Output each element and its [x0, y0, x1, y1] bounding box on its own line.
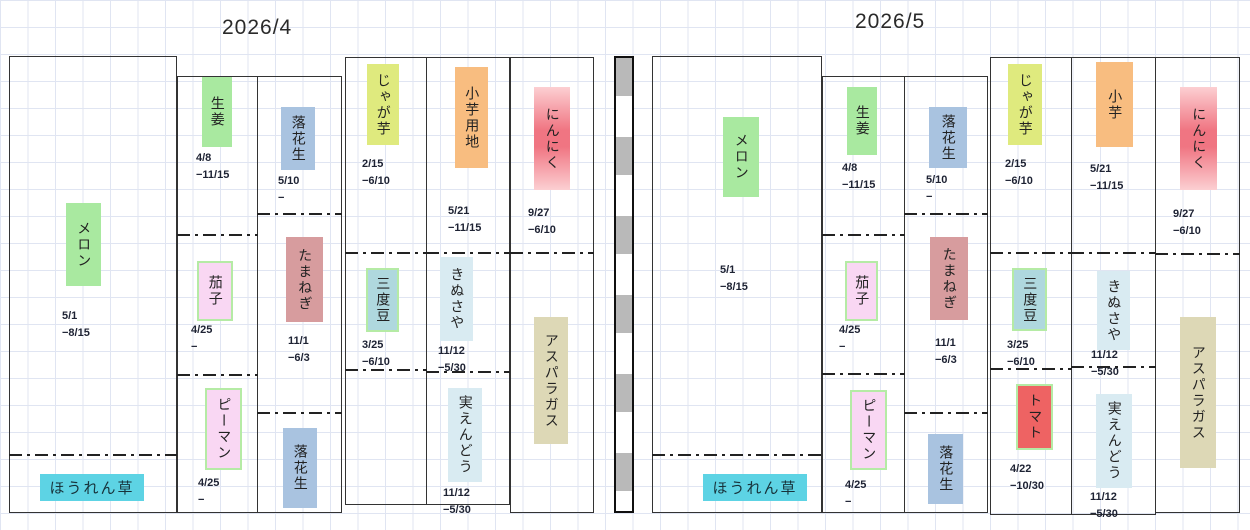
crop-chip-potato[interactable]: じゃが芋	[1008, 64, 1042, 145]
crop-dates-melon: 5/1 −8/15	[720, 262, 748, 295]
crop-dates-garlic: 9/27 −6/10	[1173, 206, 1201, 239]
crop-chip-melon[interactable]: メロン	[723, 117, 759, 197]
may-divider-bed3a	[904, 213, 988, 215]
april-divider-bed2b	[177, 374, 258, 376]
crop-chip-onion[interactable]: たまねぎ	[286, 237, 323, 322]
may-divider-bed1	[652, 454, 822, 456]
crop-dates-melon: 5/1 −8/15	[62, 308, 90, 341]
crop-dates-string-beans: 3/25 −6/10	[362, 337, 390, 370]
april-divider-bed1	[9, 454, 177, 456]
crop-chip-ginger[interactable]: 生姜	[847, 87, 877, 155]
crop-chip-green-pepper[interactable]: ピーマン	[850, 390, 887, 470]
crop-chip-snow-peas[interactable]: きぬさや	[1097, 271, 1130, 350]
crop-chip-taro[interactable]: 小芋	[1096, 62, 1133, 147]
april-divider-bed5a	[426, 252, 510, 254]
crop-dates-snow-peas: 11/12 −5/30	[1091, 347, 1119, 380]
garden-plan-canvas: 2026/4 2026/5 メロン 5/1 −8/15 生姜 4/8 −11/1…	[0, 0, 1250, 530]
crop-chip-green-pepper[interactable]: ピーマン	[205, 388, 242, 470]
crop-dates-peanut-top: 5/10 −	[278, 173, 299, 206]
crop-chip-asparagus[interactable]: アスパラガス	[534, 317, 568, 444]
april-divider-bed4a	[345, 252, 427, 254]
may-divider-bed3b	[904, 412, 988, 414]
crop-dates-onion: 11/1 −6/3	[288, 333, 310, 366]
april-divider-bed2a	[177, 234, 258, 236]
crop-chip-asparagus[interactable]: アスパラガス	[1180, 317, 1216, 468]
crop-dates-ginger: 4/8 −11/15	[196, 150, 229, 183]
crop-chip-peanut-bottom[interactable]: 落花生	[928, 434, 963, 504]
crop-chip-potato[interactable]: じゃが芋	[367, 64, 399, 145]
crop-chip-garlic[interactable]: にんにく	[1180, 87, 1217, 190]
crop-dates-eggplant: 4/25 −	[839, 322, 860, 355]
may-divider-bed5a	[1071, 252, 1156, 254]
crop-chip-peanut-bottom[interactable]: 落花生	[283, 428, 317, 508]
crop-chip-garlic[interactable]: にんにく	[534, 87, 570, 190]
april-divider-bed3a	[257, 213, 342, 215]
crop-chip-eggplant[interactable]: 茄子	[197, 261, 233, 321]
crop-dates-garlic: 9/27 −6/10	[528, 205, 556, 238]
may-divider-bed2a	[822, 234, 905, 236]
crop-chip-onion[interactable]: たまねぎ	[930, 237, 968, 320]
crop-dates-string-beans: 3/25 −6/10	[1007, 337, 1035, 370]
crop-chip-spinach[interactable]: ほうれん草	[40, 474, 144, 501]
crop-dates-taro-area: 5/21 −11/15	[448, 203, 481, 236]
crop-chip-spinach[interactable]: ほうれん草	[703, 474, 807, 501]
april-divider-bed3b	[257, 412, 342, 414]
crop-chip-tomato[interactable]: トマト	[1016, 384, 1053, 450]
panel-separator-bar	[614, 56, 634, 513]
crop-chip-melon[interactable]: メロン	[66, 203, 101, 286]
crop-dates-shelling-peas: 11/12 −5/30	[1090, 489, 1118, 522]
crop-chip-string-beans[interactable]: 三度豆	[1012, 268, 1047, 331]
crop-chip-shelling-peas[interactable]: 実えんどう	[1096, 394, 1132, 488]
crop-dates-snow-peas: 11/12 −5/30	[438, 343, 466, 376]
crop-chip-taro-area[interactable]: 小芋用地	[455, 67, 488, 168]
may-divider-bed6	[1155, 253, 1240, 255]
month-title-april: 2026/4	[222, 16, 292, 40]
crop-dates-peanut-top: 5/10 −	[926, 172, 947, 205]
crop-dates-onion: 11/1 −6/3	[935, 335, 957, 368]
crop-dates-potato: 2/15 −6/10	[362, 156, 390, 189]
crop-dates-eggplant: 4/25 −	[191, 322, 212, 355]
crop-dates-tomato: 4/22 −10/30	[1010, 461, 1044, 494]
crop-dates-shelling-peas: 11/12 −5/30	[443, 485, 471, 518]
crop-dates-green-pepper: 4/25 −	[845, 477, 866, 510]
crop-dates-green-pepper: 4/25 −	[198, 475, 219, 508]
crop-chip-peanut-top[interactable]: 落花生	[929, 107, 967, 168]
crop-dates-taro: 5/21 −11/15	[1090, 161, 1123, 194]
crop-chip-eggplant[interactable]: 茄子	[845, 261, 878, 321]
may-divider-bed4a	[990, 252, 1072, 254]
crop-chip-ginger[interactable]: 生姜	[202, 77, 232, 147]
crop-chip-snow-peas[interactable]: きぬさや	[440, 257, 473, 341]
month-title-may: 2026/5	[855, 10, 925, 34]
crop-chip-string-beans[interactable]: 三度豆	[366, 268, 399, 332]
crop-dates-ginger: 4/8 −11/15	[842, 160, 875, 193]
april-divider-bed6	[510, 252, 594, 254]
crop-chip-shelling-peas[interactable]: 実えんどう	[448, 388, 482, 482]
crop-chip-peanut-top[interactable]: 落花生	[281, 107, 315, 170]
crop-dates-potato: 2/15 −6/10	[1005, 156, 1033, 189]
may-divider-bed2b	[822, 373, 905, 375]
